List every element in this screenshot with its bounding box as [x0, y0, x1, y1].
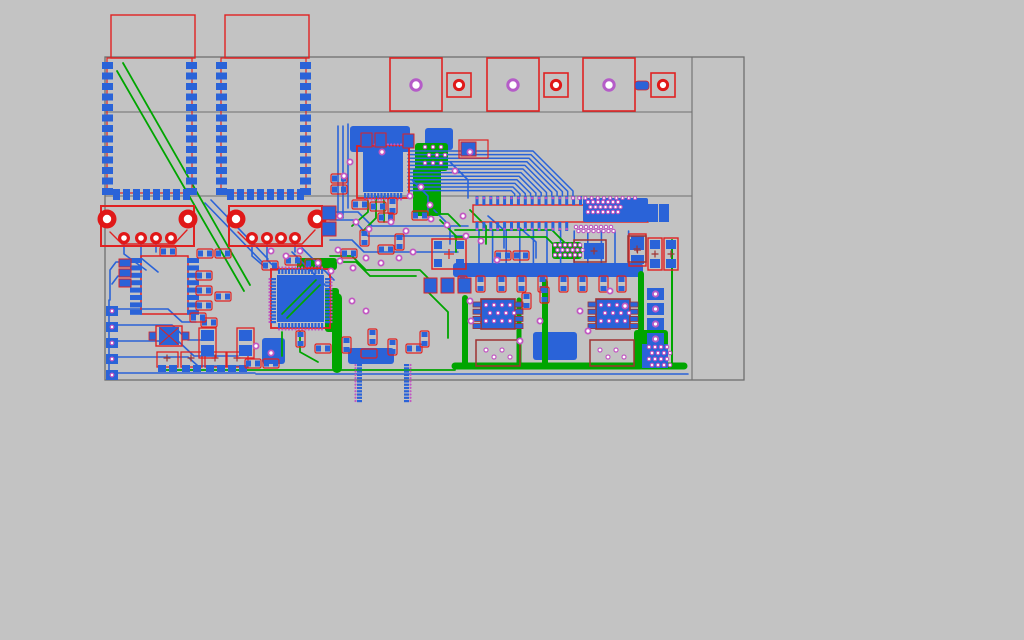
pad	[273, 361, 278, 367]
pad	[478, 286, 484, 291]
pin-dot	[294, 266, 296, 268]
pin-dot	[517, 228, 520, 231]
via	[591, 200, 594, 203]
pad	[519, 277, 525, 282]
pin-dot	[281, 328, 283, 330]
via	[599, 205, 602, 208]
castellated-pad	[277, 189, 284, 200]
via	[347, 159, 352, 164]
ic-pin	[393, 193, 395, 198]
cap-pad	[228, 365, 236, 372]
via	[606, 355, 610, 359]
pin-dot	[409, 397, 411, 399]
castellated-pad	[102, 146, 113, 153]
castellated-pad	[102, 136, 113, 143]
via	[568, 243, 571, 246]
ic-pin	[271, 288, 276, 290]
via	[601, 200, 604, 203]
copper-pour	[453, 263, 643, 277]
via	[574, 225, 577, 228]
corner-pad	[456, 241, 464, 249]
castellated-pad	[300, 178, 311, 185]
ic-pin	[301, 323, 303, 328]
ic-pin	[364, 193, 366, 198]
via	[572, 197, 575, 200]
ic-pin	[357, 393, 362, 395]
corner-pad	[434, 241, 442, 249]
via	[659, 357, 662, 360]
via	[349, 298, 354, 303]
via	[268, 248, 273, 253]
pad	[362, 231, 368, 236]
via	[607, 319, 610, 322]
ic-pin	[325, 318, 330, 320]
castellated-pad	[287, 189, 294, 200]
pin-dot	[409, 400, 411, 402]
via	[253, 343, 258, 348]
corner-pad	[456, 259, 464, 267]
smd-pad	[119, 279, 131, 287]
via	[579, 225, 582, 228]
pin-dot	[397, 143, 399, 145]
pin-dot	[531, 228, 534, 231]
via	[443, 153, 446, 156]
pin-dot	[268, 285, 270, 287]
pad	[170, 249, 175, 255]
pin-dot	[330, 314, 332, 316]
pin-dot	[552, 197, 555, 200]
ic-pin	[325, 295, 330, 297]
pin-dot	[298, 266, 300, 268]
pad	[580, 286, 586, 291]
via	[627, 197, 630, 200]
ic-pin	[321, 323, 323, 328]
castellated-pad	[133, 189, 140, 200]
via	[609, 225, 612, 228]
ic-pin	[288, 323, 290, 328]
castellated-pad	[227, 189, 234, 200]
ic-pin	[400, 193, 402, 198]
corner-pad	[434, 259, 442, 267]
pad	[371, 351, 376, 357]
smd-pad	[322, 206, 336, 220]
via	[484, 303, 487, 306]
via	[590, 197, 593, 200]
pin-dot	[559, 228, 562, 231]
ic-pin	[271, 301, 276, 303]
pad	[478, 277, 484, 282]
ic-pin	[404, 364, 409, 366]
pin-dot	[409, 393, 411, 395]
via	[431, 145, 434, 148]
castellated-pad	[163, 189, 170, 200]
cap-pad	[158, 365, 166, 372]
via	[619, 311, 622, 314]
pad	[225, 251, 230, 257]
pin-dot	[409, 370, 411, 372]
ic-body	[277, 275, 324, 322]
via	[558, 243, 561, 246]
via	[350, 265, 355, 270]
via	[668, 363, 671, 366]
pin-dot	[354, 400, 356, 402]
via	[606, 200, 609, 203]
via	[601, 210, 604, 213]
castellated-pad	[300, 115, 311, 122]
ic-pad	[515, 316, 523, 321]
castellated-pad	[216, 62, 227, 69]
cap-pad	[193, 365, 201, 372]
via	[603, 311, 606, 314]
pad	[379, 215, 384, 221]
ic-pin	[325, 288, 330, 290]
castellated-pad	[300, 125, 311, 132]
via	[659, 345, 662, 348]
pin-dot	[281, 266, 283, 268]
pad	[197, 303, 202, 309]
via	[561, 248, 564, 251]
via	[484, 319, 487, 322]
via	[653, 336, 658, 341]
pin-dot	[559, 197, 562, 200]
pad	[362, 351, 367, 357]
pin-dot	[321, 328, 323, 330]
ic-pin	[357, 364, 362, 366]
castellated-pad	[186, 83, 197, 90]
pad	[201, 345, 214, 356]
ic-pin	[357, 371, 362, 373]
pin-dot	[330, 301, 332, 303]
pad	[379, 247, 384, 253]
via	[558, 253, 561, 256]
pin-dot	[291, 266, 293, 268]
pin-dot	[545, 197, 548, 200]
via	[650, 363, 653, 366]
qfp-ic[interactable]	[268, 266, 332, 330]
via	[615, 303, 618, 306]
ic-pin	[325, 321, 330, 323]
pad	[239, 330, 252, 341]
pad	[207, 251, 212, 257]
via	[582, 229, 585, 232]
pad	[524, 303, 530, 308]
via	[596, 197, 599, 200]
pad	[523, 253, 528, 259]
via	[283, 253, 288, 258]
pad	[407, 346, 412, 352]
pin-dot	[268, 298, 270, 300]
via	[500, 319, 503, 322]
pin-dot	[565, 228, 568, 231]
smd-pad	[635, 81, 649, 90]
via	[439, 145, 442, 148]
pin-dot	[354, 377, 356, 379]
drill	[153, 235, 159, 241]
castellated-pad	[216, 188, 227, 195]
ic-pin	[404, 371, 409, 373]
ic-pin	[321, 269, 323, 274]
ic-pad	[187, 295, 199, 300]
via	[604, 225, 607, 228]
via	[619, 205, 622, 208]
pin-dot	[268, 321, 270, 323]
pin-dot	[268, 318, 270, 320]
castellated-pad	[300, 83, 311, 90]
pin-dot	[268, 304, 270, 306]
via	[656, 363, 659, 366]
via	[589, 225, 592, 228]
ic-pin	[285, 269, 287, 274]
via	[599, 225, 602, 228]
pin-dot	[517, 197, 520, 200]
ic-pin	[404, 400, 409, 402]
drill	[121, 235, 127, 241]
via	[585, 328, 590, 333]
pin-dot	[380, 198, 382, 200]
ic-pad	[588, 316, 596, 321]
pin-dot	[285, 266, 287, 268]
via	[297, 248, 302, 253]
pad	[295, 258, 300, 264]
ic-pin	[325, 314, 330, 316]
via	[463, 233, 468, 238]
drill	[232, 215, 240, 223]
castellated-pad	[102, 157, 113, 164]
drill	[264, 235, 270, 241]
via	[622, 355, 626, 359]
via	[341, 173, 346, 178]
ic-pin	[357, 387, 362, 389]
pad	[371, 204, 376, 210]
ic-pin	[304, 323, 306, 328]
via	[653, 306, 658, 311]
castellated-pad	[102, 73, 113, 80]
via	[647, 357, 650, 360]
cap-pad	[666, 259, 676, 268]
ic-pad	[130, 258, 142, 263]
via	[328, 268, 333, 273]
pin-dot	[330, 321, 332, 323]
via	[653, 345, 656, 348]
pin-dot	[384, 198, 386, 200]
via	[110, 341, 114, 345]
via	[110, 309, 114, 313]
ic-pin	[271, 311, 276, 313]
pin-dot	[503, 197, 506, 200]
via	[496, 311, 499, 314]
cap-pad	[650, 259, 660, 268]
castellated-pad	[216, 104, 227, 111]
pad	[514, 253, 519, 259]
ic-pin	[325, 278, 330, 280]
ic-pin	[295, 323, 297, 328]
castellated-pad	[300, 136, 311, 143]
via	[596, 200, 599, 203]
pin-dot	[531, 197, 534, 200]
via	[378, 260, 383, 265]
pin-dot	[278, 328, 280, 330]
ic-pin	[393, 146, 395, 151]
ic-pad	[187, 265, 199, 270]
ic-pin	[278, 323, 280, 328]
ic-pin	[314, 323, 316, 328]
via	[647, 345, 650, 348]
pin-dot	[354, 364, 356, 366]
castellated-pad	[300, 94, 311, 101]
via	[668, 351, 671, 354]
via	[388, 219, 393, 224]
ic-pin	[271, 308, 276, 310]
via	[478, 238, 483, 243]
via	[592, 229, 595, 232]
ic-pin	[404, 374, 409, 376]
ic-pin	[271, 291, 276, 293]
pin-dot	[288, 266, 290, 268]
via	[460, 213, 465, 218]
pin-dot	[393, 143, 395, 145]
via	[571, 248, 574, 251]
via	[110, 325, 114, 329]
ic-pin	[404, 380, 409, 382]
ic-pin	[404, 397, 409, 399]
pin-dot	[330, 304, 332, 306]
via	[468, 318, 473, 323]
pad	[362, 240, 368, 245]
ic-pin	[377, 193, 379, 198]
via	[578, 253, 581, 256]
pin-dot	[387, 143, 389, 145]
ic-pad	[515, 324, 523, 329]
ic-pin	[357, 397, 362, 399]
pin-dot	[291, 328, 293, 330]
via	[428, 216, 433, 221]
via	[614, 205, 617, 208]
via	[627, 311, 630, 314]
pad	[519, 286, 525, 291]
smd-pad	[424, 278, 437, 293]
via	[363, 255, 368, 260]
pin-dot	[510, 228, 513, 231]
ic-pin	[371, 193, 373, 198]
via	[584, 225, 587, 228]
pad	[397, 235, 403, 240]
via	[366, 226, 371, 231]
pin-dot	[354, 370, 356, 372]
pin-dot	[354, 397, 356, 399]
smd-pad	[403, 134, 414, 148]
ic-pin	[387, 193, 389, 198]
pad	[197, 273, 202, 279]
ic-pin	[271, 304, 276, 306]
pad	[390, 208, 396, 213]
pad	[561, 277, 567, 282]
via-hole	[411, 80, 421, 90]
smd-pad	[322, 222, 336, 236]
pad	[390, 199, 396, 204]
via	[439, 161, 442, 164]
castellated-pad	[237, 189, 244, 200]
pad	[255, 361, 260, 367]
castellated-pad	[216, 115, 227, 122]
pad	[246, 361, 251, 367]
smd-pad	[375, 133, 386, 147]
pin-dot	[490, 197, 493, 200]
via	[427, 202, 432, 207]
ic-pin	[325, 298, 330, 300]
via	[650, 351, 653, 354]
ic-pad	[187, 280, 199, 285]
pin-dot	[354, 367, 356, 369]
ic-pin	[271, 285, 276, 287]
pad	[505, 253, 510, 259]
via	[599, 319, 602, 322]
pad	[332, 187, 337, 193]
castellated-pad	[247, 189, 254, 200]
pad	[351, 251, 356, 257]
via	[452, 168, 457, 173]
castellated-pad	[173, 189, 180, 200]
pin-dot	[268, 291, 270, 293]
pad	[264, 361, 269, 367]
pcb-layout-view[interactable]	[0, 0, 1024, 640]
castellated-pad	[216, 146, 227, 153]
pad	[191, 315, 196, 321]
via	[616, 200, 619, 203]
mini-pad[interactable]	[635, 81, 649, 90]
drill	[168, 235, 174, 241]
via	[609, 197, 612, 200]
smd-pad	[361, 133, 372, 147]
ic-pin	[271, 295, 276, 297]
pin-dot	[298, 328, 300, 330]
ic-pin	[397, 146, 399, 151]
pin-dot	[330, 288, 332, 290]
castellated-pad	[216, 73, 227, 80]
via	[665, 345, 668, 348]
via	[315, 260, 320, 265]
pin-dot	[409, 377, 411, 379]
pad	[206, 288, 211, 294]
castellated-pad	[216, 157, 227, 164]
ic-pin	[271, 298, 276, 300]
via	[611, 311, 614, 314]
via	[268, 350, 273, 355]
via	[492, 355, 496, 359]
castellated-pad	[216, 178, 227, 185]
castellated-pad	[186, 104, 197, 111]
castellated-pad	[216, 136, 227, 143]
via	[379, 149, 384, 154]
ic-pin	[271, 318, 276, 320]
ic-pad	[630, 316, 638, 321]
via	[508, 319, 511, 322]
pin-dot	[483, 197, 486, 200]
pin-dot	[314, 328, 316, 330]
via	[622, 303, 627, 308]
ic-pin	[390, 146, 392, 151]
via	[607, 288, 612, 293]
drill-hole	[658, 80, 667, 89]
via	[653, 357, 656, 360]
ic-pin	[281, 269, 283, 274]
pcb-editor-canvas[interactable]	[0, 0, 1024, 640]
via	[423, 145, 426, 148]
pad	[272, 263, 277, 269]
castellated-pad	[267, 189, 274, 200]
castellated-pad	[216, 83, 227, 90]
pad	[344, 347, 350, 352]
ic-pad	[130, 288, 142, 293]
